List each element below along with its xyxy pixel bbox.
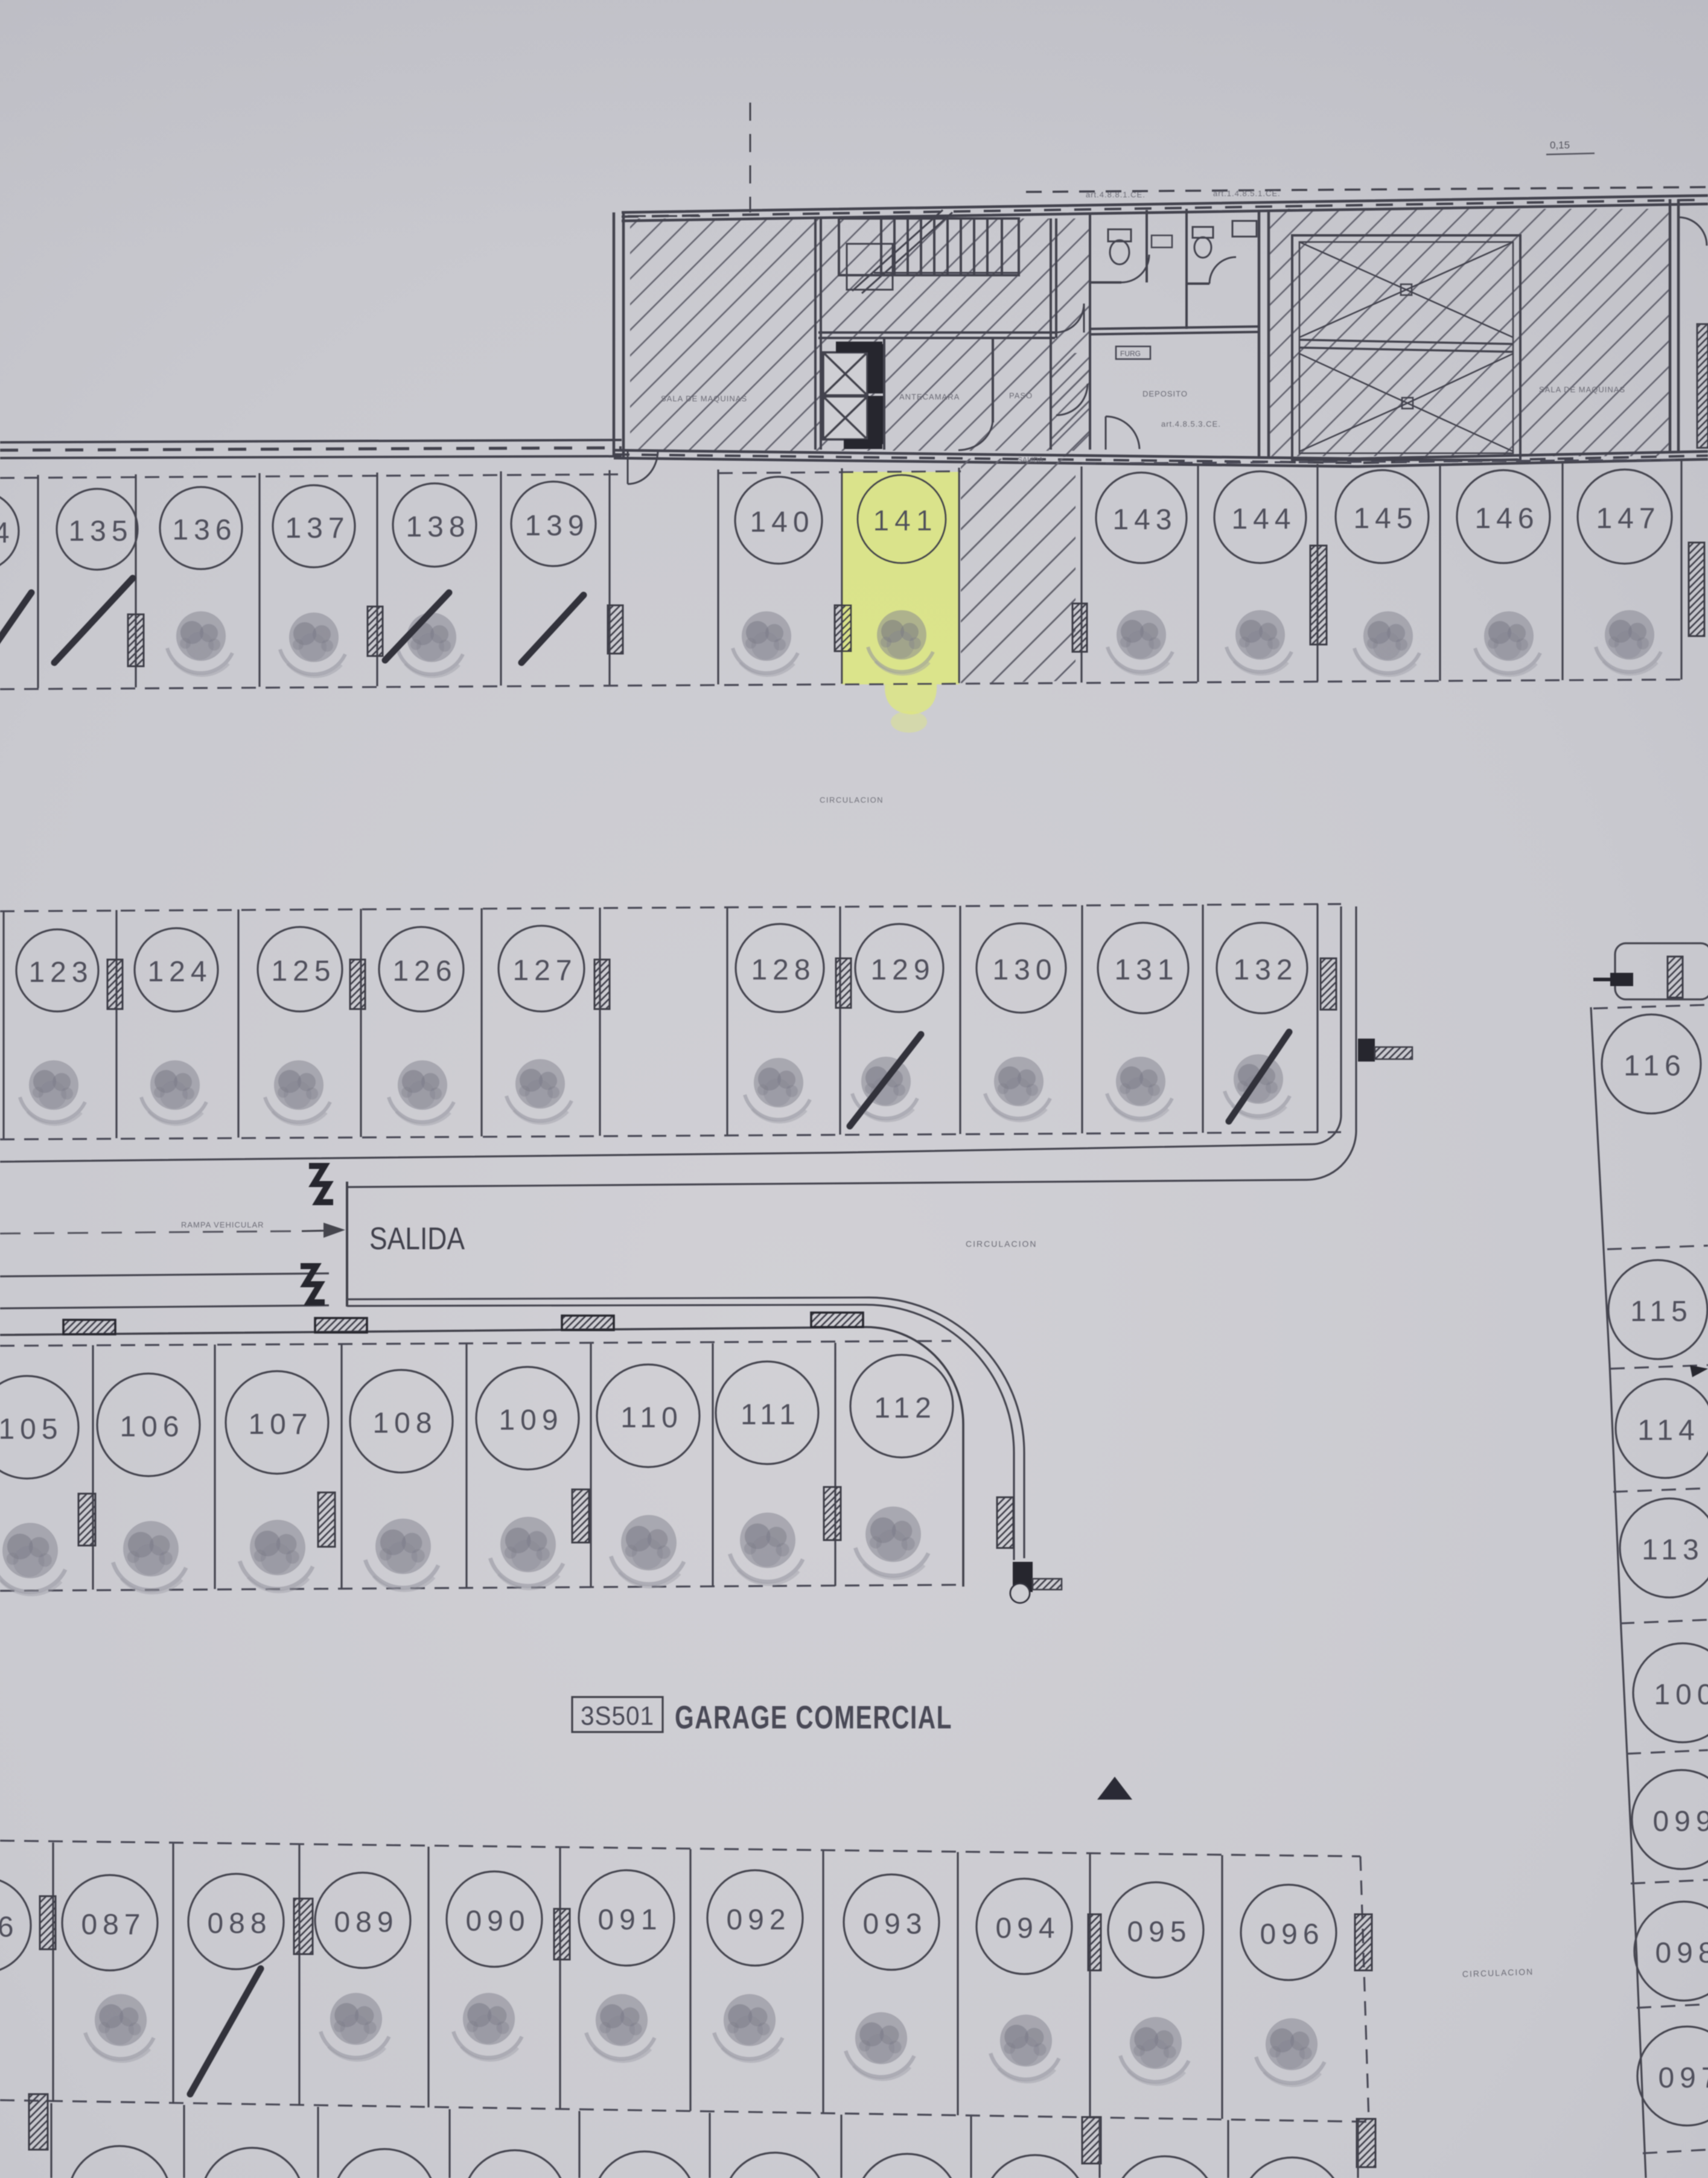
svg-text:129: 129 xyxy=(870,954,935,986)
svg-text:136: 136 xyxy=(172,514,237,546)
svg-text:110: 110 xyxy=(620,1402,683,1434)
svg-text:132: 132 xyxy=(1233,954,1298,986)
svg-text:088: 088 xyxy=(207,1908,272,1940)
svg-text:093: 093 xyxy=(862,1908,927,1940)
svg-text:087: 087 xyxy=(81,1909,145,1941)
svg-text:124: 124 xyxy=(147,956,212,988)
svg-text:092: 092 xyxy=(726,1904,791,1936)
svg-text:112: 112 xyxy=(874,1392,937,1424)
svg-text:138: 138 xyxy=(406,511,470,543)
svg-text:135: 135 xyxy=(68,515,133,547)
svg-text:106: 106 xyxy=(119,1411,184,1443)
svg-text:109: 109 xyxy=(499,1404,563,1436)
svg-text:086: 086 xyxy=(0,1911,19,1943)
svg-text:116: 116 xyxy=(1624,1050,1686,1082)
svg-text:111: 111 xyxy=(741,1399,801,1431)
svg-text:SALA DE MAQUINAS: SALA DE MAQUINAS xyxy=(661,394,747,403)
svg-text:GARAGE COMERCIAL: GARAGE COMERCIAL xyxy=(675,1699,952,1736)
svg-text:141: 141 xyxy=(873,505,937,537)
svg-text:147: 147 xyxy=(1596,503,1660,535)
svg-text:CIRCULACION: CIRCULACION xyxy=(966,1239,1037,1249)
svg-text:091: 091 xyxy=(597,1904,662,1936)
svg-text:105: 105 xyxy=(0,1413,63,1445)
svg-text:098: 098 xyxy=(1655,1937,1708,1969)
svg-text:3S501: 3S501 xyxy=(581,1701,654,1731)
svg-text:100: 100 xyxy=(1654,1679,1708,1711)
svg-text:090: 090 xyxy=(465,1905,530,1937)
svg-text:134: 134 xyxy=(0,517,15,549)
svg-text:137: 137 xyxy=(285,512,349,544)
svg-text:108: 108 xyxy=(372,1407,437,1439)
svg-text:ANTECAMARA: ANTECAMARA xyxy=(899,392,960,401)
svg-text:139: 139 xyxy=(524,510,589,542)
svg-text:115: 115 xyxy=(1630,1296,1693,1328)
svg-text:094: 094 xyxy=(995,1912,1060,1944)
svg-text:095: 095 xyxy=(1127,1916,1191,1948)
svg-text:099: 099 xyxy=(1652,1806,1708,1838)
svg-text:096: 096 xyxy=(1260,1918,1324,1950)
svg-text:126: 126 xyxy=(392,955,457,987)
svg-text:145: 145 xyxy=(1353,503,1418,535)
svg-text:art.4.8.5.3.CE.: art.4.8.5.3.CE. xyxy=(1161,419,1221,428)
svg-text:125: 125 xyxy=(271,955,336,987)
svg-text:0,15: 0,15 xyxy=(1550,139,1570,151)
svg-text:127: 127 xyxy=(512,955,577,987)
svg-text:CIRCULACION: CIRCULACION xyxy=(820,795,884,804)
svg-text:097: 097 xyxy=(1658,2062,1708,2094)
svg-text:PASO: PASO xyxy=(1009,391,1033,400)
svg-text:113: 113 xyxy=(1642,1534,1704,1566)
svg-text:FURG: FURG xyxy=(1120,349,1141,358)
svg-text:130: 130 xyxy=(992,954,1057,986)
svg-text:art.1.4.8.5.1.CE.: art.1.4.8.5.1.CE. xyxy=(1213,189,1281,198)
svg-text:146: 146 xyxy=(1474,503,1539,535)
svg-text:140: 140 xyxy=(750,506,814,538)
svg-text:RAMPA VEHICULAR: RAMPA VEHICULAR xyxy=(181,1220,264,1229)
svg-text:SALA DE MAQUINAS: SALA DE MAQUINAS xyxy=(1539,385,1625,394)
svg-text:143: 143 xyxy=(1112,504,1177,536)
svg-text:144: 144 xyxy=(1231,503,1296,535)
svg-text:123: 123 xyxy=(28,957,93,989)
svg-text:DEPOSITO: DEPOSITO xyxy=(1142,389,1188,398)
svg-text:114: 114 xyxy=(1637,1415,1700,1447)
svg-text:128: 128 xyxy=(751,954,815,986)
svg-text:131: 131 xyxy=(1114,954,1179,986)
svg-text:089: 089 xyxy=(334,1906,398,1938)
svg-text:art.4.8.8.1.CE.: art.4.8.8.1.CE. xyxy=(1086,190,1146,199)
svg-text:SALIDA: SALIDA xyxy=(369,1221,465,1256)
svg-text:107: 107 xyxy=(248,1409,313,1441)
